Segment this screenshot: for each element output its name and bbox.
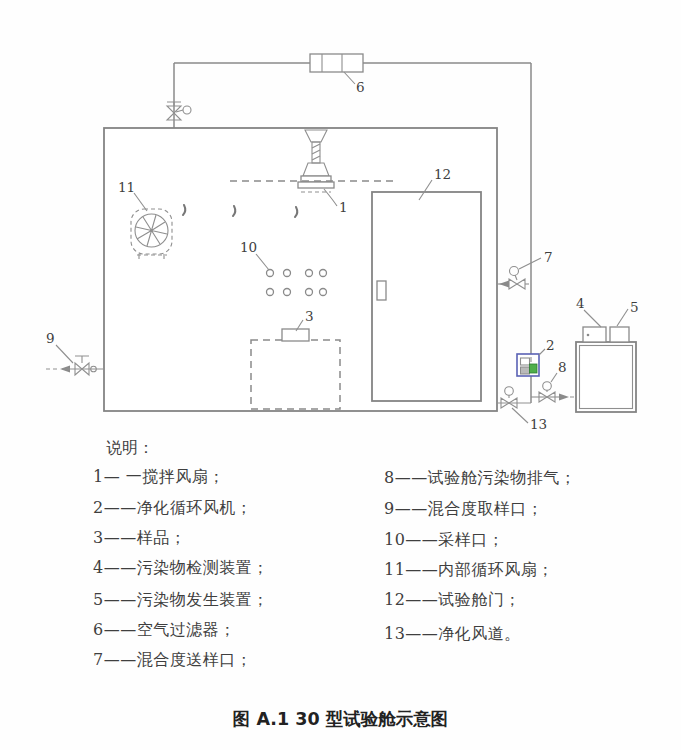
legend-item: 3——样品； xyxy=(93,528,186,549)
legend-item: 9——混合度取样口； xyxy=(384,499,543,520)
legend-item: 6——空气过滤器； xyxy=(93,620,236,641)
circulation-fan-unit: 2 xyxy=(517,337,555,376)
feed-port-valve: 7 xyxy=(497,249,553,289)
label-10: 10 xyxy=(240,239,257,255)
legend-item: 12——试验舱门； xyxy=(384,590,521,611)
label-4: 4 xyxy=(576,295,585,311)
label-3: 3 xyxy=(305,308,314,324)
label-13: 13 xyxy=(530,416,547,432)
chamber-door: 12 xyxy=(372,166,481,401)
legend-item: 4——污染物检测装置； xyxy=(93,558,269,579)
air-filter: 6 xyxy=(310,54,365,95)
legend-item: 11——内部循环风扇； xyxy=(384,560,554,581)
legend-title: 说明： xyxy=(106,438,154,459)
label-9: 9 xyxy=(46,330,55,346)
document-page: 6 1 11 xyxy=(0,0,681,750)
legend-item: 1— 一搅拌风扇； xyxy=(93,467,225,488)
legend-item: 13——净化风道。 xyxy=(384,624,521,645)
label-2: 2 xyxy=(546,337,555,353)
door-handle xyxy=(377,281,386,300)
label-1: 1 xyxy=(339,199,348,215)
legend-item: 5——污染物发生装置； xyxy=(93,590,269,611)
label-5: 5 xyxy=(630,299,639,315)
label-12: 12 xyxy=(434,166,451,182)
label-6: 6 xyxy=(356,79,365,95)
inlet-valve-icon xyxy=(167,102,191,120)
sampling-port-valve: 9 xyxy=(46,330,104,375)
legend-item: 10——采样口； xyxy=(384,530,504,551)
test-chamber-schematic: 6 1 11 xyxy=(0,0,681,435)
legend-item: 8——试验舱污染物排气； xyxy=(384,468,576,489)
duct-valve: 13 xyxy=(497,387,547,432)
figure-caption: 图 A.1 30 型试验舱示意图 xyxy=(0,707,681,731)
detection-generation-devices: 4 5 xyxy=(576,295,639,412)
label-11: 11 xyxy=(118,179,135,195)
label-7: 7 xyxy=(544,249,553,265)
legend-item: 2——净化循环风机； xyxy=(93,498,252,519)
label-8: 8 xyxy=(558,359,567,375)
legend-item: 7——混合度送样口； xyxy=(93,650,252,671)
